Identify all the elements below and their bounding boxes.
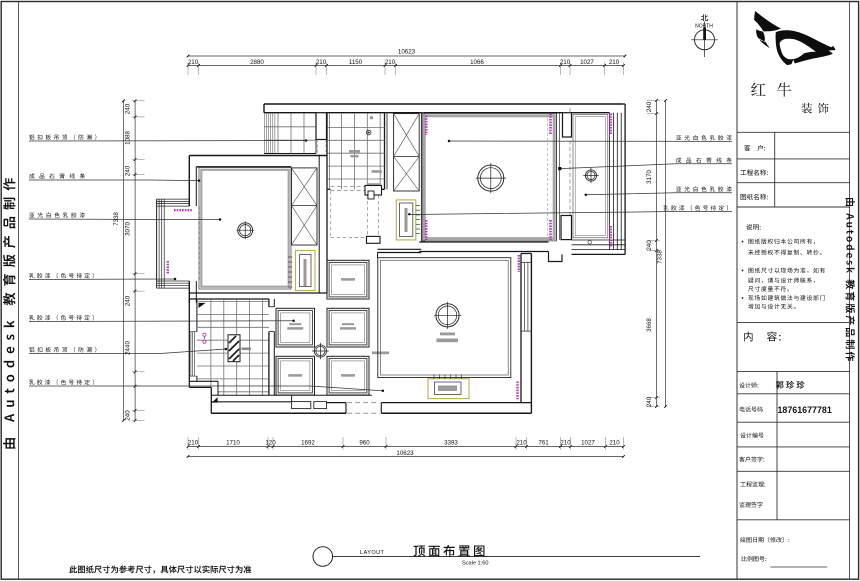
svg-text:18761677781: 18761677781 [778,405,832,415]
svg-text:LAYOUT: LAYOUT [360,550,385,556]
svg-text:10623: 10623 [398,49,416,56]
svg-text:210: 210 [188,59,199,66]
svg-text:210: 210 [188,440,199,447]
svg-text:240: 240 [124,103,131,114]
svg-text:1027: 1027 [580,59,594,66]
svg-text:240: 240 [124,410,131,421]
svg-text:761: 761 [538,440,549,447]
svg-text:3668: 3668 [646,318,653,332]
svg-text:10623: 10623 [396,450,414,457]
svg-text:240: 240 [646,396,653,407]
svg-text:240: 240 [124,295,131,306]
svg-text:960: 960 [359,440,370,447]
svg-text:1066: 1066 [470,59,484,66]
svg-text:3393: 3393 [444,440,458,447]
svg-text:1027: 1027 [581,440,595,447]
svg-text:2440: 2440 [124,341,131,355]
svg-text:210: 210 [560,59,571,66]
svg-text:210: 210 [316,59,327,66]
svg-text:210: 210 [609,440,620,447]
svg-text:210: 210 [609,59,620,66]
svg-text:2880: 2880 [250,59,264,66]
svg-text:240: 240 [646,101,653,112]
svg-text:7338: 7338 [657,250,664,264]
svg-text:210: 210 [385,59,396,66]
svg-text:210: 210 [516,440,527,447]
svg-text:240: 240 [124,165,131,176]
svg-text:7338: 7338 [113,212,120,226]
svg-text:1692: 1692 [301,440,315,447]
svg-text:240: 240 [646,240,653,251]
svg-text:1710: 1710 [226,440,240,447]
svg-text:120: 120 [265,440,276,447]
svg-text:Scale 1:60: Scale 1:60 [462,561,488,567]
svg-text:1150: 1150 [349,59,363,66]
svg-text:210: 210 [560,440,571,447]
svg-text:1088: 1088 [124,131,131,145]
svg-text:3070: 3070 [124,222,131,236]
svg-text:3170: 3170 [646,170,653,184]
